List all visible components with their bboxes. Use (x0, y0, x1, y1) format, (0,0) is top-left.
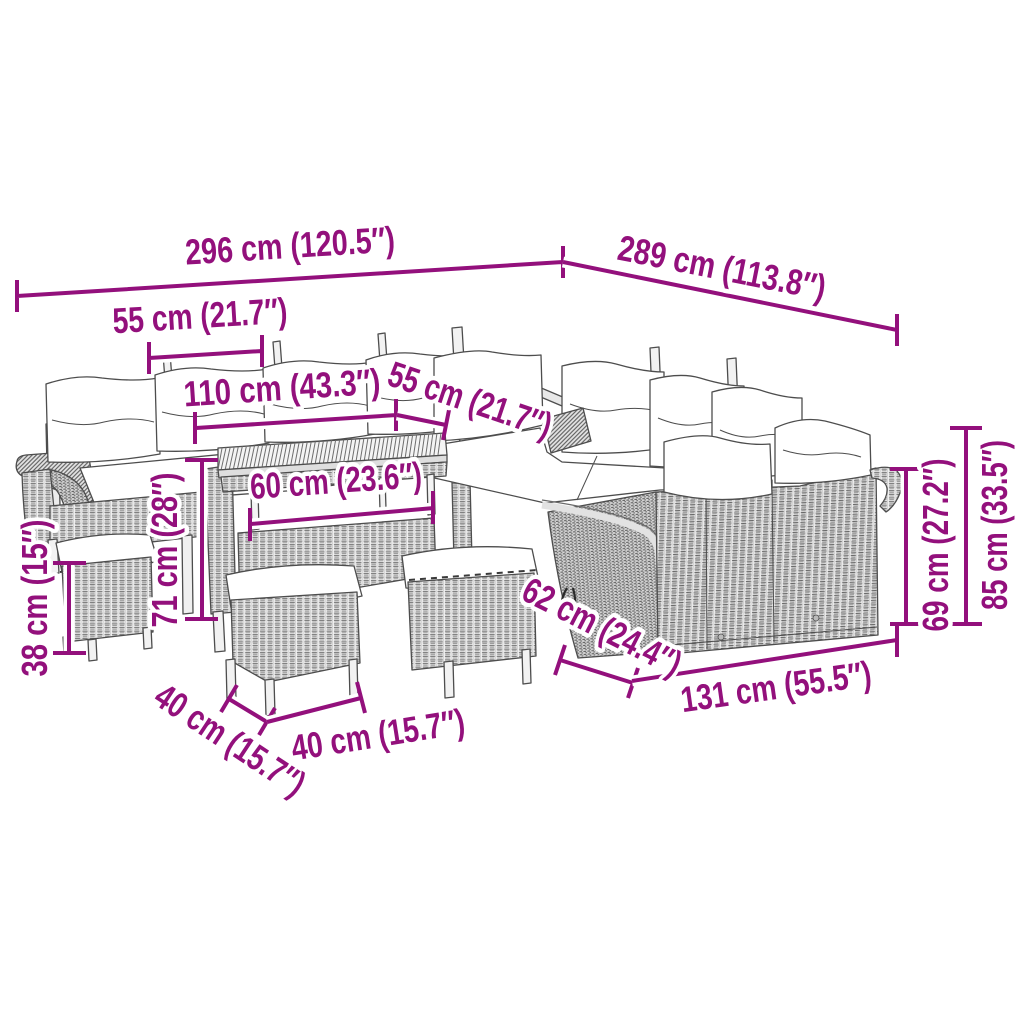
svg-text:69 cm (27.2″): 69 cm (27.2″) (915, 459, 956, 632)
svg-text:85 cm (33.5″): 85 cm (33.5″) (974, 440, 1015, 610)
svg-text:71 cm (28″): 71 cm (28″) (144, 473, 185, 628)
svg-text:38 cm (15″): 38 cm (15″) (14, 520, 55, 677)
